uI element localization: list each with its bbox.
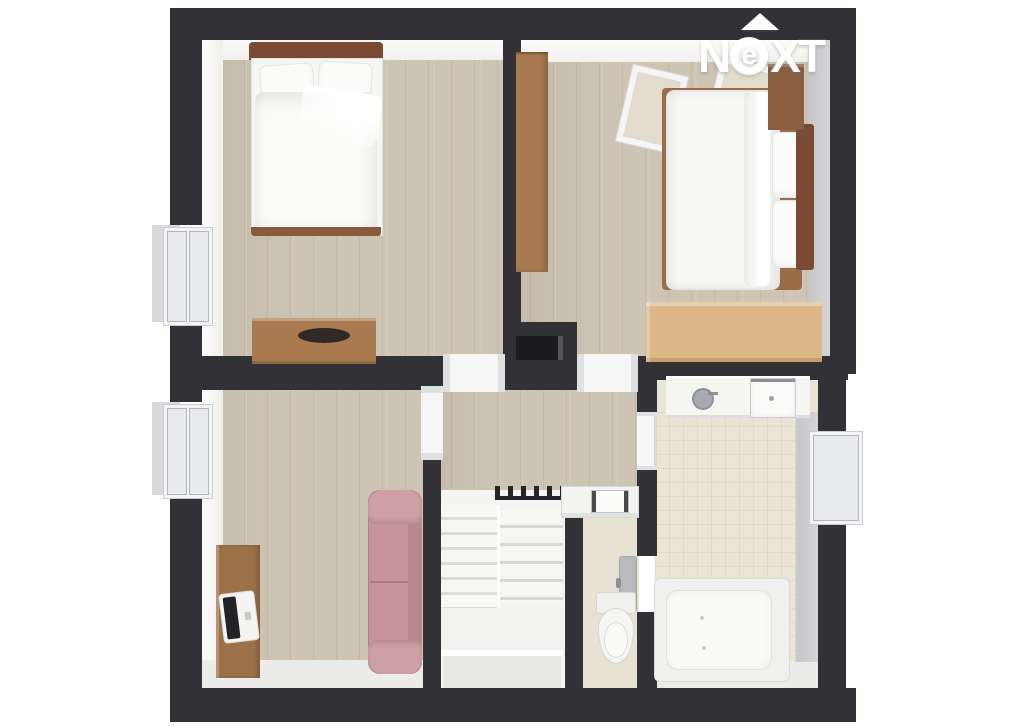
study-laptop bbox=[218, 590, 260, 644]
bedroom1-window bbox=[164, 228, 212, 325]
window-pane bbox=[167, 408, 187, 495]
wall-right-bathroom-lower bbox=[818, 516, 846, 692]
wall-bath-left-a bbox=[637, 374, 657, 414]
bathtub-basin bbox=[666, 590, 772, 670]
sofa-armrest-bottom bbox=[368, 640, 422, 674]
bedroom2-doorway bbox=[577, 354, 638, 392]
window-pane bbox=[189, 408, 209, 495]
toilet-seat bbox=[604, 622, 628, 658]
bed1-footboard bbox=[251, 227, 381, 236]
bed1-duvet-fold bbox=[297, 85, 383, 148]
logo-letter-n: N bbox=[698, 33, 728, 79]
chimney-flue bbox=[516, 336, 563, 360]
study-window bbox=[164, 405, 212, 498]
stair-railing bbox=[495, 486, 567, 500]
vanity-faucet-handle bbox=[708, 392, 718, 395]
wall-left-lower bbox=[170, 495, 202, 692]
staircase-landing bbox=[441, 608, 563, 652]
staircase-lower-floor bbox=[443, 656, 561, 688]
wall-study-hall-stub bbox=[423, 458, 441, 688]
bathroom-doorway bbox=[637, 412, 657, 470]
bathtub-jet bbox=[700, 616, 704, 620]
bed2-headboard bbox=[796, 124, 814, 270]
floorplan-image: N e X T bbox=[0, 0, 1024, 727]
bathtub-jet bbox=[702, 646, 706, 650]
wall-bath-left-b bbox=[637, 468, 657, 556]
sink-drain bbox=[769, 396, 774, 401]
wc-door-handle bbox=[616, 578, 621, 588]
staircase-right-flight bbox=[500, 510, 563, 602]
bedroom2-wardrobe bbox=[516, 52, 548, 272]
bed2-blanket-fold bbox=[744, 92, 770, 286]
bathroom-window bbox=[810, 432, 862, 524]
logo-ring-e: e bbox=[730, 37, 768, 75]
wall-left-upper bbox=[170, 8, 202, 225]
railing-bar bbox=[495, 496, 567, 500]
logo-letter-x: X bbox=[770, 33, 798, 79]
window-pane bbox=[813, 435, 859, 521]
laptop-screen bbox=[223, 596, 241, 639]
wall-bottom bbox=[170, 688, 856, 722]
wall-right-bathroom-upper bbox=[818, 374, 846, 434]
staircase-left-flight bbox=[441, 505, 500, 608]
logo-letter-t: T bbox=[798, 33, 823, 79]
window-pane bbox=[189, 231, 209, 322]
wall-stairs-right bbox=[565, 505, 583, 690]
brand-logo: N e X T bbox=[698, 33, 823, 79]
laptop-key bbox=[244, 612, 251, 621]
bedroom2-chest bbox=[646, 302, 822, 362]
window-pane bbox=[167, 231, 187, 322]
sofa-seam bbox=[370, 581, 408, 583]
study-doorway bbox=[421, 386, 443, 460]
wc-washbasin bbox=[591, 490, 629, 513]
bedroom1-doorway bbox=[443, 354, 505, 392]
sofa-armrest-top bbox=[368, 490, 422, 524]
dresser-handle bbox=[298, 328, 350, 343]
logo-up-arrow-icon bbox=[741, 13, 779, 30]
wall-right-bedroom2 bbox=[830, 8, 856, 374]
logo-letter-e: e bbox=[741, 41, 757, 69]
